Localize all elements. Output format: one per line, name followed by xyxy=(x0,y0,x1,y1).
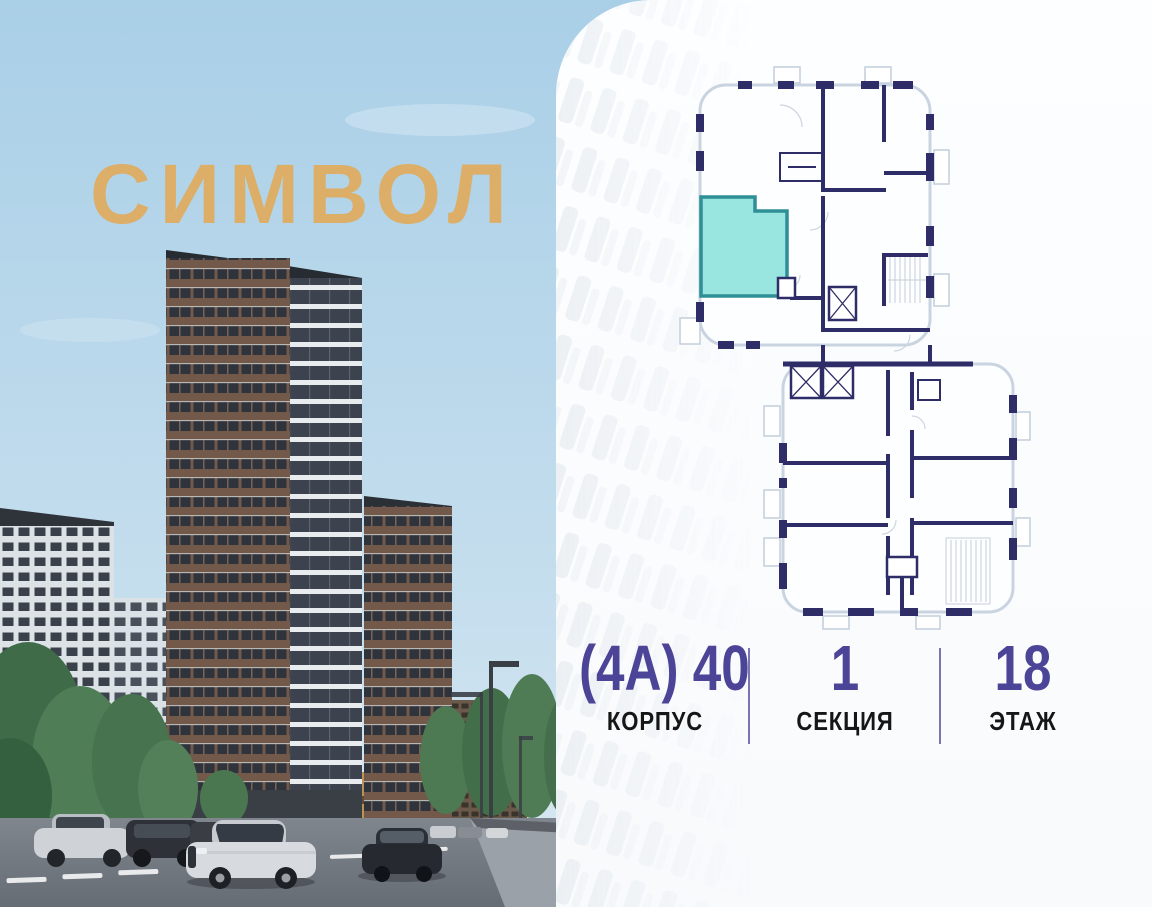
floor-value: 18 xyxy=(959,640,1087,696)
unit-info: (4А) 40 КОРПУС 1 СЕКЦИЯ 18 ЭТАЖ xyxy=(556,634,1116,764)
apartment-entry xyxy=(778,278,795,298)
korpus-label: КОРПУС xyxy=(574,706,736,737)
tower-main xyxy=(166,250,362,824)
cloud xyxy=(20,318,160,342)
details-panel: (4А) 40 КОРПУС 1 СЕКЦИЯ 18 ЭТАЖ xyxy=(556,0,1152,907)
brand-logo: СИМВОЛ xyxy=(90,146,516,243)
floor-label: ЭТАЖ xyxy=(955,706,1091,737)
apartment-card: СИМВОЛ xyxy=(0,0,1152,907)
unit-info-korpus: (4А) 40 КОРПУС xyxy=(560,640,750,737)
info-divider xyxy=(939,648,941,744)
korpus-value: (4А) 40 xyxy=(579,640,731,696)
info-divider xyxy=(748,648,750,744)
floor-plan xyxy=(660,50,1040,630)
selected-apartment[interactable] xyxy=(701,197,787,296)
section-value: 1 xyxy=(771,640,920,696)
section-label: СЕКЦИЯ xyxy=(766,706,924,737)
unit-info-floor: 18 ЭТАЖ xyxy=(943,640,1103,737)
unit-info-section: 1 СЕКЦИЯ xyxy=(752,640,938,737)
cloud xyxy=(345,104,535,136)
